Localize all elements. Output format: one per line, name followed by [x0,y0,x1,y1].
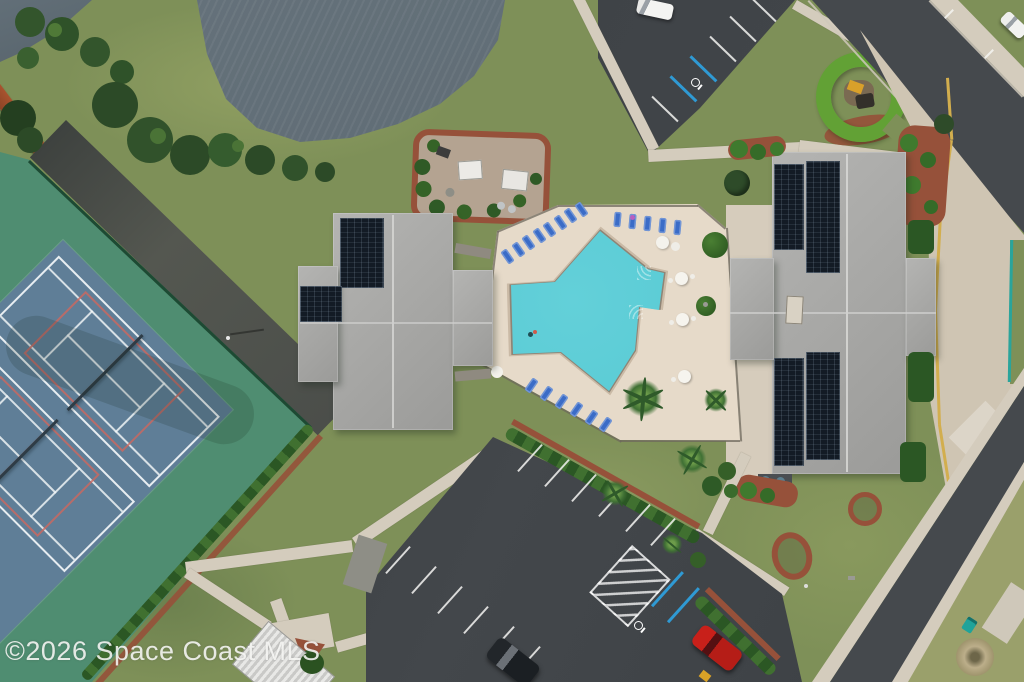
lounge-chair [643,216,651,232]
pool-house-right-wing [453,270,493,366]
pool-steps [637,266,651,280]
clubhouse-right-wing [906,258,936,356]
tree [17,127,43,153]
umbrella [671,242,680,251]
palm-tree [660,532,684,556]
palm-tree [621,376,665,420]
canopy [458,160,483,181]
entry-ramp [454,243,491,259]
watermark: ©2026 Space Coast MLS [5,636,321,667]
person-on-float [630,215,635,220]
umbrella [656,236,669,249]
bush [924,200,938,214]
table-chair [690,274,695,279]
bush [740,482,757,499]
tree [282,155,308,181]
tree [315,162,335,182]
solar-panel-array [774,358,804,466]
bush [770,142,784,156]
hedge-block [908,352,934,402]
table-chair [671,377,676,382]
patio-table [676,313,689,326]
roof-ridge [730,312,936,314]
patio-table [678,370,691,383]
palm-tree [675,442,709,476]
lounge-chair [613,212,621,228]
table-chair [669,320,674,325]
solar-panel-array [806,352,840,460]
solar-panel-array [340,218,384,288]
round-tree [724,170,750,196]
bush [110,60,134,84]
bush [15,7,45,37]
lawn-marker [804,584,808,588]
roof-ridge [300,322,492,324]
bush [730,140,748,158]
tree [127,117,173,163]
light-pole [226,336,230,340]
pool-house-left-wing [298,266,338,382]
hedge-block [900,442,926,482]
tree-highlight [150,128,166,144]
table-chair [691,316,696,321]
lounge-chair [658,218,666,234]
tree-highlight [232,140,244,152]
lounge-chair [673,220,681,236]
bbq-patio [410,129,551,226]
pool-float [533,330,537,334]
clubhouse-left-wing [730,258,774,360]
canopy [501,169,529,192]
bush-cluster [702,476,722,496]
tree [934,114,954,134]
tree [92,82,138,128]
hedge-block [908,220,934,254]
bush [900,134,918,152]
bush [80,37,110,67]
pool-steps [629,305,643,319]
entry-ramp [455,368,492,381]
bush [718,462,736,480]
mulch-ring [848,492,882,526]
palm-tree [702,386,730,414]
bush [920,152,936,168]
bush [17,47,39,69]
planter-pot [703,302,708,307]
solar-panel-array [806,161,840,273]
table-chair [668,278,673,283]
aerial-photo: ©2026 Space Coast MLS [0,0,1024,682]
bush [750,144,766,160]
skylight [785,296,803,325]
white-table [491,366,503,378]
patio-table [675,272,688,285]
white-car [999,10,1024,40]
solar-panel-array [774,164,804,250]
bush [760,488,775,503]
bush-highlight [48,23,62,37]
bush [690,552,706,568]
deck-planter [702,232,728,258]
bush-cluster [724,484,738,498]
tree [170,135,210,175]
tree [245,145,275,175]
palm-tree [600,478,630,508]
lawn-bench [848,576,855,580]
sand-mound [956,638,994,676]
solar-panel-array [300,286,342,322]
